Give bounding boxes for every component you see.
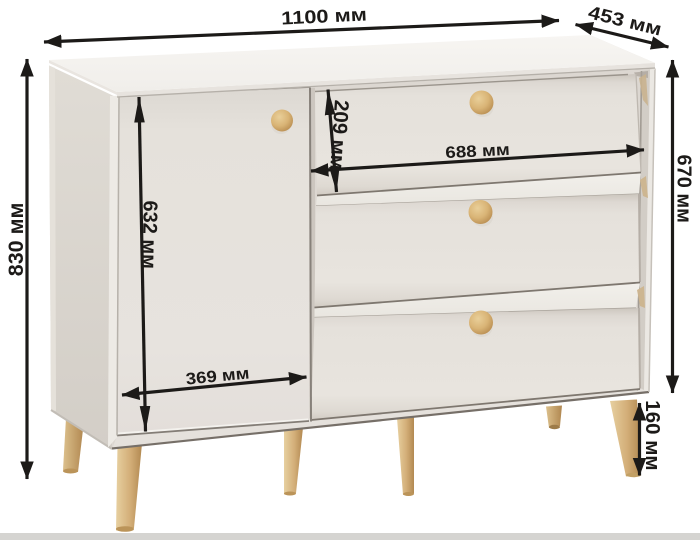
svg-text:632 мм: 632 мм: [138, 200, 161, 269]
svg-text:1100 мм: 1100 мм: [281, 5, 368, 29]
svg-text:670 мм: 670 мм: [673, 154, 695, 223]
svg-text:209 мм: 209 мм: [325, 99, 353, 171]
svg-text:830 мм: 830 мм: [4, 203, 28, 277]
svg-text:160 мм: 160 мм: [641, 400, 664, 470]
svg-text:688 мм: 688 мм: [445, 140, 510, 162]
